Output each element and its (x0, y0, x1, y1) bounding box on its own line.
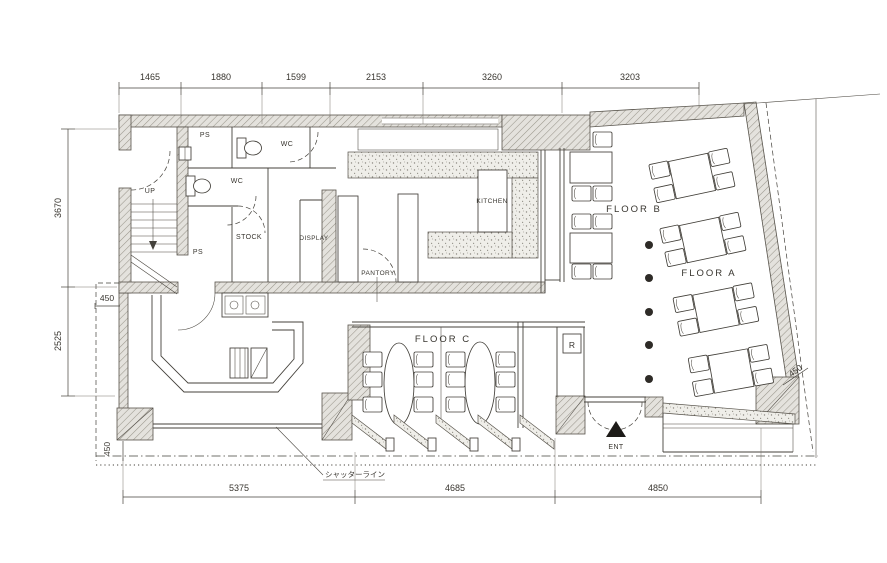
toilet-lower-icon (186, 176, 211, 196)
pantry-door-swing (363, 249, 396, 282)
floor-b-bench (545, 132, 612, 282)
label-ps-lower: PS (193, 249, 203, 256)
dim-top-2: 1880 (211, 72, 231, 82)
oval-table-2 (465, 342, 495, 424)
kitchen-counter-bottom (428, 232, 512, 258)
wall-left-lower (119, 293, 128, 410)
dim-offset-left-bottom: 450 (102, 442, 112, 456)
floor-c: FLOOR C (352, 322, 585, 428)
dimensions-bottom: 5375 4685 4850 (123, 428, 761, 504)
boundary-line-top (744, 94, 880, 104)
dim-top-6: 3203 (620, 72, 640, 82)
stair-door-swing (131, 151, 170, 190)
shutter-leader (276, 427, 323, 475)
kitchen-area: KITCHEN PANTORY (338, 129, 545, 302)
label-floor-c: FLOOR C (415, 334, 471, 345)
kitchen-counter-top (348, 152, 538, 178)
dim-top-1: 1465 (140, 72, 160, 82)
label-wc-upper: WC (281, 141, 293, 148)
bar-room (152, 293, 322, 428)
dim-bottom-2: 4685 (445, 483, 465, 493)
stock-door-swing (238, 206, 265, 233)
label-stock: STOCK (236, 234, 262, 241)
dim-bottom-1: 5375 (229, 483, 249, 493)
pantry-counter-left (338, 196, 358, 282)
wall-left-upper (119, 115, 131, 150)
label-floor-a: FLOOR A (681, 268, 736, 279)
dim-top-4: 2153 (366, 72, 386, 82)
dim-offset-left-top: 450 (100, 293, 114, 303)
entry-door-swing-left (588, 402, 615, 430)
floor-plan-page: UP PS WC WC PS STOCK DISPLAY (0, 0, 887, 563)
wall-south-band-a (119, 282, 178, 293)
table-4top-2 (660, 212, 746, 267)
wall-top-right (590, 103, 744, 127)
entry-door-swing-right (615, 402, 642, 430)
oval-table-1 (384, 343, 414, 425)
wall-left-mid (119, 188, 131, 293)
table-4top-1 (649, 148, 735, 203)
service-rooms: PS WC WC PS STOCK DISPLAY (179, 127, 336, 282)
pier-entrance-right (645, 397, 663, 417)
label-kitchen: KITCHEN (476, 198, 507, 205)
wall-south-band-b (215, 282, 545, 293)
sawtooth-storefront (352, 415, 554, 451)
pantry-counter-right (398, 194, 418, 282)
kitchen-counter-right (512, 178, 538, 258)
top-window (382, 118, 498, 125)
wc-lower-door-swing (227, 196, 256, 225)
structural-columns (645, 241, 653, 383)
label-register: R (569, 340, 575, 350)
toilet-upper-icon (237, 138, 262, 158)
offset-line-left (96, 283, 119, 461)
label-wc-lower: WC (231, 178, 243, 185)
floor-plan-canvas: UP PS WC WC PS STOCK DISPLAY (0, 0, 887, 563)
dim-top-3: 1599 (286, 72, 306, 82)
label-pantry: PANTORY (361, 270, 395, 277)
dim-left-1: 3670 (53, 198, 63, 218)
dim-left-2: 2525 (53, 331, 63, 351)
bench-table-2 (570, 233, 612, 263)
label-ps-upper: PS (200, 132, 210, 139)
sink (222, 293, 268, 317)
bench-table-1 (570, 152, 612, 183)
label-floor-b: FLOOR B (606, 204, 662, 215)
dimensions-left: 3670 2525 (53, 129, 117, 396)
dim-bottom-3: 4850 (648, 483, 668, 493)
label-up: UP (145, 188, 156, 195)
register-closet: R (552, 322, 585, 397)
wall-pier-top-center (502, 115, 590, 150)
bar-door-swing (178, 293, 215, 330)
bar-equipment-1 (230, 348, 248, 378)
entrance: ENT (584, 397, 646, 451)
kitchen-pass-counter (358, 129, 498, 150)
label-display: DISPLAY (300, 235, 329, 242)
staircase: UP (131, 151, 177, 294)
table-4top-3 (673, 283, 759, 337)
label-entrance: ENT (608, 444, 624, 451)
dim-top-5: 3260 (482, 72, 502, 82)
